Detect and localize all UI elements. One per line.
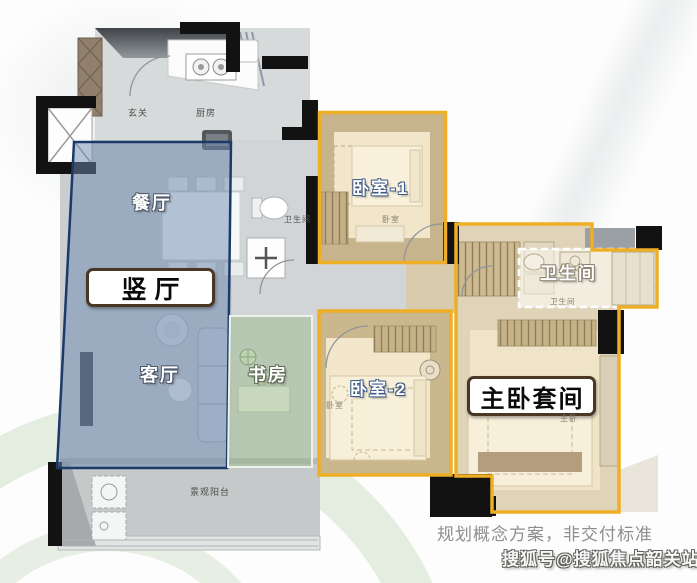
watermark-text: 搜狐号@搜狐焦点韶关站 — [502, 551, 697, 570]
bedroom2-tag: 卧室 — [326, 402, 344, 411]
master-suite-badge: 主卧套间 — [467, 376, 596, 416]
living-label: 客厅 — [140, 366, 180, 386]
vertical-hall-badge: 竖厅 — [86, 268, 215, 307]
balcony-label: 景观阳台 — [190, 488, 230, 498]
bedroom2-label: 卧室-2 — [350, 381, 407, 400]
disclaimer-text: 规划概念方案，非交付标准 — [437, 526, 653, 545]
master-bath-label: 卫生间 — [540, 265, 597, 284]
bedroom1-tag: 卧室 — [382, 216, 400, 225]
entrance-label: 玄关 — [128, 109, 148, 119]
small-bath-label: 卫生间 — [284, 216, 311, 225]
master-tag: 主卧 — [560, 415, 578, 424]
study-label: 书房 — [248, 366, 288, 386]
kitchen-label: 厨房 — [196, 109, 216, 119]
bedroom1-label: 卧室-1 — [352, 180, 409, 199]
master-bath-tag: 卫生间 — [550, 298, 576, 306]
floorplan-canvas: 玄关 厨房 餐厅 竖厅 客厅 书房 景观阳台 卫生间 卧室-1 卧室 卧室-2 … — [0, 0, 697, 583]
dining-label: 餐厅 — [132, 194, 172, 214]
study-green-overlay — [228, 316, 312, 467]
